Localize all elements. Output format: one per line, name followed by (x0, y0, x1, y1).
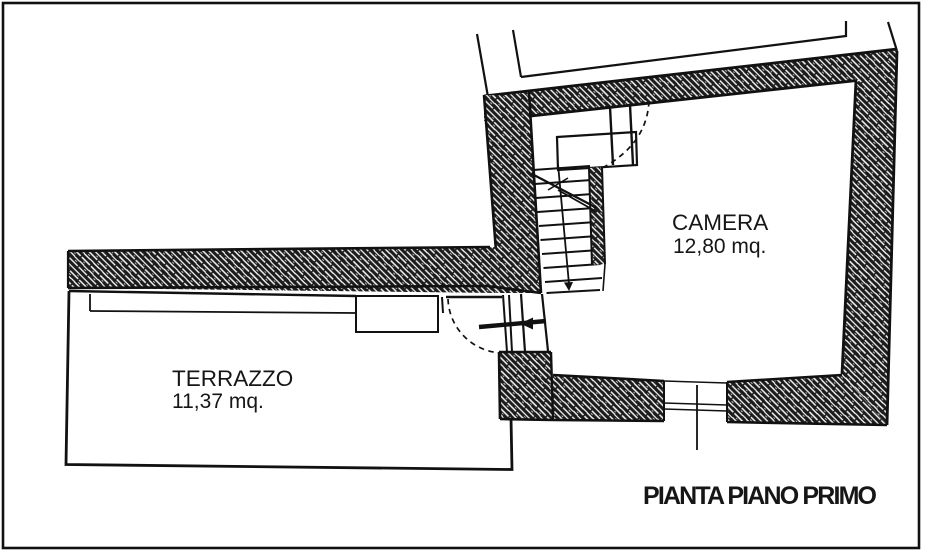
svg-text:11,37 mq.: 11,37 mq. (172, 390, 264, 413)
svg-text:TERRAZZO: TERRAZZO (172, 366, 293, 391)
svg-text:CAMERA: CAMERA (672, 210, 768, 235)
svg-text:12,80 mq.: 12,80 mq. (673, 235, 766, 258)
svg-text:PIANTA PIANO PRIMO: PIANTA PIANO PRIMO (643, 482, 877, 510)
